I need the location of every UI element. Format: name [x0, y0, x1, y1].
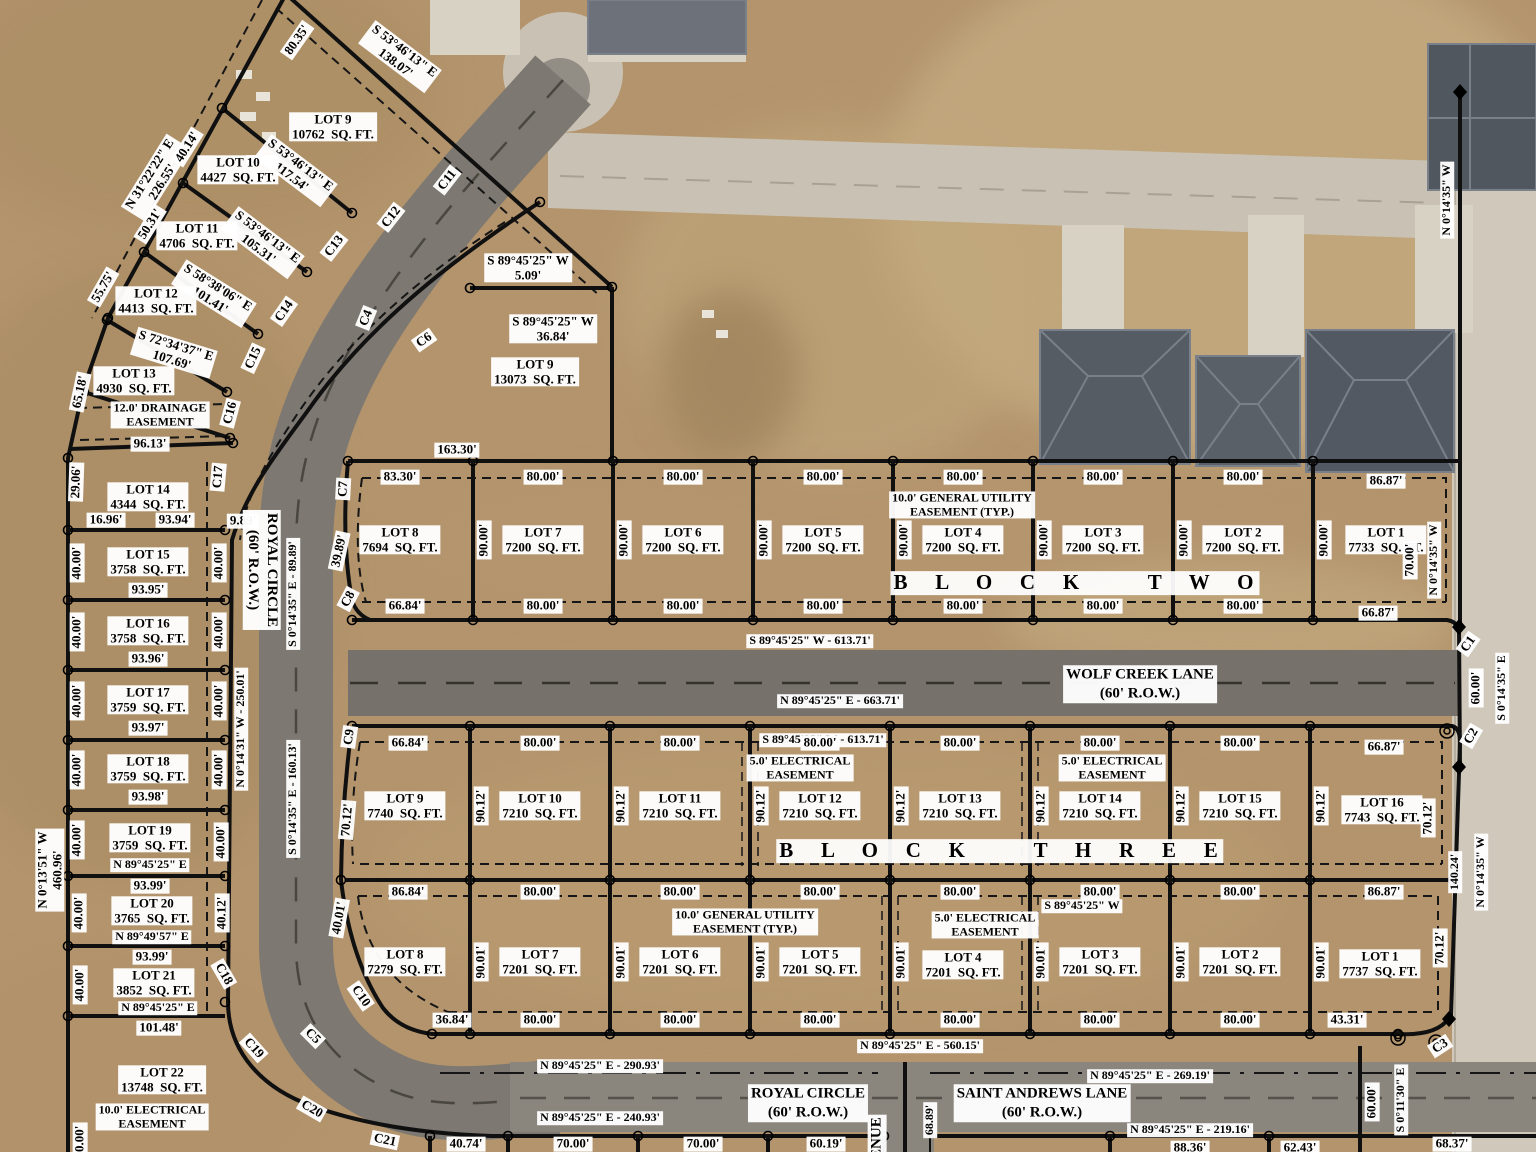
plat-label: C19: [239, 1033, 269, 1064]
plat-label: 80.00': [941, 885, 980, 900]
plat-label: WOLF CREEK LANE (60' R.O.W.): [1063, 665, 1217, 703]
plat-label: LOT 9 13073 SQ. FT.: [491, 357, 579, 386]
plat-label: N 0°13'51" W 460.96': [35, 828, 64, 911]
plat-label: LOT 6 7200 SQ. FT.: [642, 525, 723, 554]
plat-label: LOT 19 3759 SQ. FT.: [109, 823, 190, 852]
plat-label: 40.12': [215, 894, 230, 933]
plat-label: 90.00': [477, 521, 492, 560]
plat-label: 140.24': [1448, 851, 1462, 893]
plat-label: 80.00': [1081, 736, 1120, 751]
plat-label: 90.01': [1174, 943, 1189, 982]
plat-label: N 89°45'25" E - 560.15': [857, 1039, 983, 1053]
plat-label: S 0°14'35" E - 160.13': [286, 740, 300, 858]
plat-label: N 89°45'25" E: [110, 858, 189, 872]
plat-label: LOT 16 3758 SQ. FT.: [107, 616, 188, 645]
plat-map-canvas: 80.35'S 53°46'13" E 138.07'LOT 9 10762 S…: [0, 0, 1536, 1152]
plat-label: 70.12': [1433, 929, 1448, 968]
plat-label: LOT 10 7210 SQ. FT.: [499, 791, 580, 820]
plat-label: 93.95': [129, 583, 168, 598]
plat-label: C4: [355, 305, 377, 331]
plat-label: 93.94': [156, 513, 195, 528]
plat-label: C16: [219, 397, 241, 428]
plat-label: C18: [211, 958, 238, 990]
plat-label: 90.00': [617, 521, 632, 560]
plat-label: LOT 15 3758 SQ. FT.: [107, 547, 188, 576]
plat-label: LOT 17 3759 SQ. FT.: [107, 685, 188, 714]
plat-label: 90.12': [1174, 787, 1189, 826]
plat-label: 80.00': [801, 885, 840, 900]
plat-label: B L O C K T H R E E: [776, 839, 1223, 863]
plat-label: ROYAL CIRCLE (60' R.O.W.): [748, 1084, 868, 1122]
plat-label: S 89°45'25" W 36.84': [509, 314, 597, 343]
plat-label: LOT 22 13748 SQ. FT.: [118, 1065, 206, 1094]
plat-label: N 0°14'31" W - 250.01': [234, 667, 248, 790]
plat-label: LOT 13 4930 SQ. FT.: [93, 366, 174, 395]
plat-label: LOT 2 7201 SQ. FT.: [1199, 947, 1280, 976]
plat-label: 80.00': [1081, 885, 1120, 900]
plat-label: C14: [270, 295, 298, 327]
plat-label: LOT 5 7201 SQ. FT.: [779, 947, 860, 976]
plat-label: 10.0' ELECTRICAL EASEMENT: [96, 1103, 209, 1130]
plat-label: N 89°49'57" E: [112, 930, 191, 944]
plat-label: 40.00': [73, 966, 88, 1005]
plat-label: 80.00': [524, 599, 563, 614]
plat-label: 5.0' ELECTRICAL EASEMENT: [932, 911, 1039, 938]
plat-label: 90.01': [754, 943, 769, 982]
plat-label: LOT 10 4427 SQ. FT.: [197, 155, 278, 184]
plat-label: 36.84': [433, 1013, 472, 1028]
plat-label: 80.00': [521, 1013, 560, 1028]
plat-label: LOT 12 7210 SQ. FT.: [779, 791, 860, 820]
plat-label: LOT 20 3765 SQ. FT.: [111, 896, 192, 925]
plat-label: 80.00': [661, 736, 700, 751]
plat-label: LOT 3 7200 SQ. FT.: [1062, 525, 1143, 554]
plat-label: 40.00': [72, 894, 87, 933]
plat-label: 80.00': [804, 470, 843, 485]
plat-label: 70.00': [554, 1137, 593, 1152]
plat-label: C1: [1456, 631, 1481, 657]
plat-label: 90.12': [1314, 787, 1329, 826]
plat-label: 80.00': [1221, 885, 1260, 900]
plat-label: 40.00': [212, 613, 227, 652]
plat-label: N 0°14'35" W: [1474, 833, 1488, 910]
plat-label: LOT 9 10762 SQ. FT.: [289, 112, 377, 141]
plat-label: 90.00': [1177, 521, 1192, 560]
plat-label: 80.00': [1221, 736, 1260, 751]
plat-label: 16.96': [87, 513, 126, 528]
plat-label: C8: [336, 586, 359, 612]
plat-label: S 89°45'25" W: [1041, 899, 1122, 913]
plat-label: S 53°46'13" E 138.07': [358, 20, 442, 94]
plat-label: 86.87': [1367, 474, 1406, 489]
plat-label: LOT 15 7210 SQ. FT.: [1199, 791, 1280, 820]
plat-label: 66.84': [389, 736, 428, 751]
plat-label: 40.01': [328, 898, 349, 939]
plat-label: LOT 12 4413 SQ. FT.: [115, 286, 196, 315]
plat-label: LOT 16 7743 SQ. FT.: [1341, 795, 1422, 824]
plat-label: 40.00': [73, 1123, 88, 1152]
plat-label: S 0°11'30" E: [1394, 1065, 1408, 1136]
plat-label: LOT 13 7210 SQ. FT.: [919, 791, 1000, 820]
plat-label: LOT 8 7694 SQ. FT.: [359, 525, 440, 554]
plat-label: C3: [1427, 1034, 1453, 1058]
plat-label: 70.00': [1403, 541, 1418, 580]
plat-label: 68.37': [1433, 1137, 1472, 1152]
plat-label: 68.89': [923, 1102, 937, 1138]
plat-label: LOT 3 7201 SQ. FT.: [1059, 947, 1140, 976]
plat-label: 80.00': [1224, 599, 1263, 614]
plat-label: 80.00': [944, 599, 983, 614]
plat-label: ROYAL CIRCLE (60' R.O.W.): [243, 510, 281, 630]
plat-label: LOT 5 7200 SQ. FT.: [782, 525, 863, 554]
plat-label: 66.84': [386, 599, 425, 614]
plat-label: 40.00': [70, 751, 85, 790]
plat-label: 80.00': [664, 470, 703, 485]
plat-label: 93.98': [129, 790, 168, 805]
plat-label: C5: [300, 1023, 326, 1049]
plat-labels-layer: 80.35'S 53°46'13" E 138.07'LOT 9 10762 S…: [0, 0, 1536, 1152]
plat-label: 90.12': [894, 787, 909, 826]
plat-label: C20: [296, 1096, 328, 1123]
plat-label: LOT 18 3759 SQ. FT.: [107, 754, 188, 783]
plat-label: 60.00': [1469, 669, 1484, 708]
plat-label: 80.00': [521, 885, 560, 900]
plat-label: 80.00': [1221, 1013, 1260, 1028]
plat-label: C10: [347, 980, 375, 1012]
plat-label: 40.00': [212, 544, 227, 583]
plat-label: 80.00': [941, 1013, 980, 1028]
plat-label: N 89°45'25" E - 290.93': [537, 1059, 663, 1073]
plat-label: 10.0' GENERAL UTILITY EASEMENT (TYP.): [672, 908, 818, 935]
plat-label: 90.01': [1034, 943, 1049, 982]
plat-label: 80.00': [804, 599, 843, 614]
plat-label: LOT 14 7210 SQ. FT.: [1059, 791, 1140, 820]
plat-label: 40.00': [70, 613, 85, 652]
plat-label: 80.00': [801, 736, 840, 751]
plat-label: 40.00': [70, 544, 85, 583]
plat-label: 70.12': [338, 800, 356, 840]
plat-label: 80.00': [1084, 470, 1123, 485]
plat-label: LOT 11 7210 SQ. FT.: [639, 791, 720, 820]
plat-label: 12.0' DRAINAGE EASEMENT: [111, 401, 210, 428]
plat-label: 86.87': [1365, 885, 1404, 900]
plat-label: 80.00': [801, 1013, 840, 1028]
plat-label: C2: [1459, 723, 1483, 749]
plat-label: LOT 1 7737 SQ. FT.: [1339, 949, 1420, 978]
plat-label: C21: [370, 1130, 401, 1150]
plat-label: LOT 6 7201 SQ. FT.: [639, 947, 720, 976]
plat-label: N 89°45'25" E - 269.19': [1087, 1069, 1213, 1083]
plat-label: C7: [335, 478, 351, 501]
plat-label: 93.97': [129, 721, 168, 736]
plat-label: C9: [340, 725, 358, 749]
plat-label: S 89°45'25" W 5.09': [484, 253, 572, 282]
plat-label: 40.00': [212, 751, 227, 790]
plat-label: 90.00': [757, 521, 772, 560]
plat-label: 96.13': [131, 437, 170, 452]
plat-label: LOT 21 3852 SQ. FT.: [113, 968, 194, 997]
plat-label: S 0°14'35" E: [1495, 652, 1509, 723]
plat-label: S 89°45'25" W - 613.71': [746, 634, 873, 648]
plat-label: AVENUE: [868, 1114, 887, 1152]
plat-label: 10.0' GENERAL UTILITY EASEMENT (TYP.): [889, 491, 1035, 518]
plat-label: 43.31': [1328, 1013, 1367, 1028]
plat-label: 80.00': [1081, 1013, 1120, 1028]
plat-label: C6: [411, 328, 437, 353]
plat-label: LOT 4 7201 SQ. FT.: [922, 950, 1003, 979]
plat-label: 62.43': [1281, 1141, 1320, 1152]
plat-label: N 0°14'35" W: [1440, 161, 1454, 238]
plat-label: 80.00': [661, 885, 700, 900]
plat-label: 90.00': [897, 521, 912, 560]
plat-label: 40.00': [212, 682, 227, 721]
plat-label: 80.35': [280, 20, 314, 60]
plat-label: N 89°45'25" E - 663.71': [777, 694, 903, 708]
plat-label: 90.01': [614, 943, 629, 982]
plat-label: 70.00': [684, 1137, 723, 1152]
plat-label: 101.48': [136, 1021, 181, 1036]
plat-label: N 89°45'25" E - 219.16': [1127, 1123, 1253, 1137]
plat-label: C11: [433, 165, 462, 196]
plat-label: 55.75': [87, 266, 119, 307]
plat-label: LOT 14 4344 SQ. FT.: [107, 482, 188, 511]
plat-label: 66.87': [1365, 740, 1404, 755]
plat-label: 90.01': [474, 943, 489, 982]
plat-label: 80.00': [1084, 599, 1123, 614]
plat-label: 83.30': [381, 470, 420, 485]
plat-label: 40.00': [70, 682, 85, 721]
plat-label: 90.12': [1034, 787, 1049, 826]
plat-label: 90.12': [754, 787, 769, 826]
plat-label: 70.12': [1421, 799, 1436, 838]
plat-label: 93.96': [129, 652, 168, 667]
plat-label: LOT 9 7740 SQ. FT.: [364, 791, 445, 820]
plat-label: 80.00': [661, 1013, 700, 1028]
plat-label: 90.01': [1314, 943, 1329, 982]
plat-label: LOT 2 7200 SQ. FT.: [1202, 525, 1283, 554]
plat-label: 39.89': [328, 530, 350, 571]
plat-label: 90.00': [1037, 521, 1052, 560]
plat-label: 60.00': [1365, 1083, 1380, 1122]
plat-label: 86.84': [389, 885, 428, 900]
plat-label: 88.36': [1171, 1141, 1210, 1152]
plat-label: 90.01': [894, 943, 909, 982]
plat-label: 80.00': [521, 736, 560, 751]
plat-label: N 89°45'25" E - 240.93': [537, 1111, 663, 1125]
plat-label: 40.74': [447, 1137, 486, 1152]
plat-label: 90.12': [614, 787, 629, 826]
plat-label: 40.00': [214, 823, 229, 862]
plat-label: 80.00': [524, 470, 563, 485]
plat-label: 80.00': [944, 470, 983, 485]
plat-label: 29.06': [68, 462, 84, 501]
plat-label: 80.00': [941, 736, 980, 751]
plat-label: N 0°14'35" W: [1427, 521, 1441, 598]
plat-label: 90.00': [1317, 521, 1332, 560]
plat-label: 93.99': [133, 950, 172, 965]
plat-label: S 0°14'35" E - 89.89': [286, 538, 300, 650]
plat-label: 163.30': [434, 443, 479, 458]
plat-label: 90.12': [474, 787, 489, 826]
plat-label: LOT 7 7201 SQ. FT.: [499, 947, 580, 976]
plat-label: LOT 4 7200 SQ. FT.: [922, 525, 1003, 554]
plat-label: B L O C K T W O: [890, 571, 1259, 595]
plat-label: 60.19': [807, 1137, 846, 1152]
plat-label: C12: [376, 201, 405, 232]
plat-label: N 89°45'25" E: [118, 1001, 197, 1015]
plat-label: 66.87': [1359, 606, 1398, 621]
plat-label: 5.0' ELECTRICAL EASEMENT: [1059, 754, 1166, 781]
plat-label: C15: [240, 342, 265, 374]
plat-label: C13: [319, 230, 348, 261]
plat-label: 80.00': [664, 599, 703, 614]
plat-label: 80.00': [1224, 470, 1263, 485]
plat-label: 65.18': [69, 371, 91, 412]
plat-label: SAINT ANDREWS LANE (60' R.O.W.): [954, 1084, 1131, 1122]
plat-label: 93.99': [131, 879, 170, 894]
plat-label: C17: [209, 462, 226, 492]
plat-label: 5.0' ELECTRICAL EASEMENT: [747, 754, 854, 781]
plat-label: LOT 7 7200 SQ. FT.: [502, 525, 583, 554]
plat-label: LOT 8 7279 SQ. FT.: [364, 947, 445, 976]
plat-label: 40.00': [70, 821, 85, 860]
